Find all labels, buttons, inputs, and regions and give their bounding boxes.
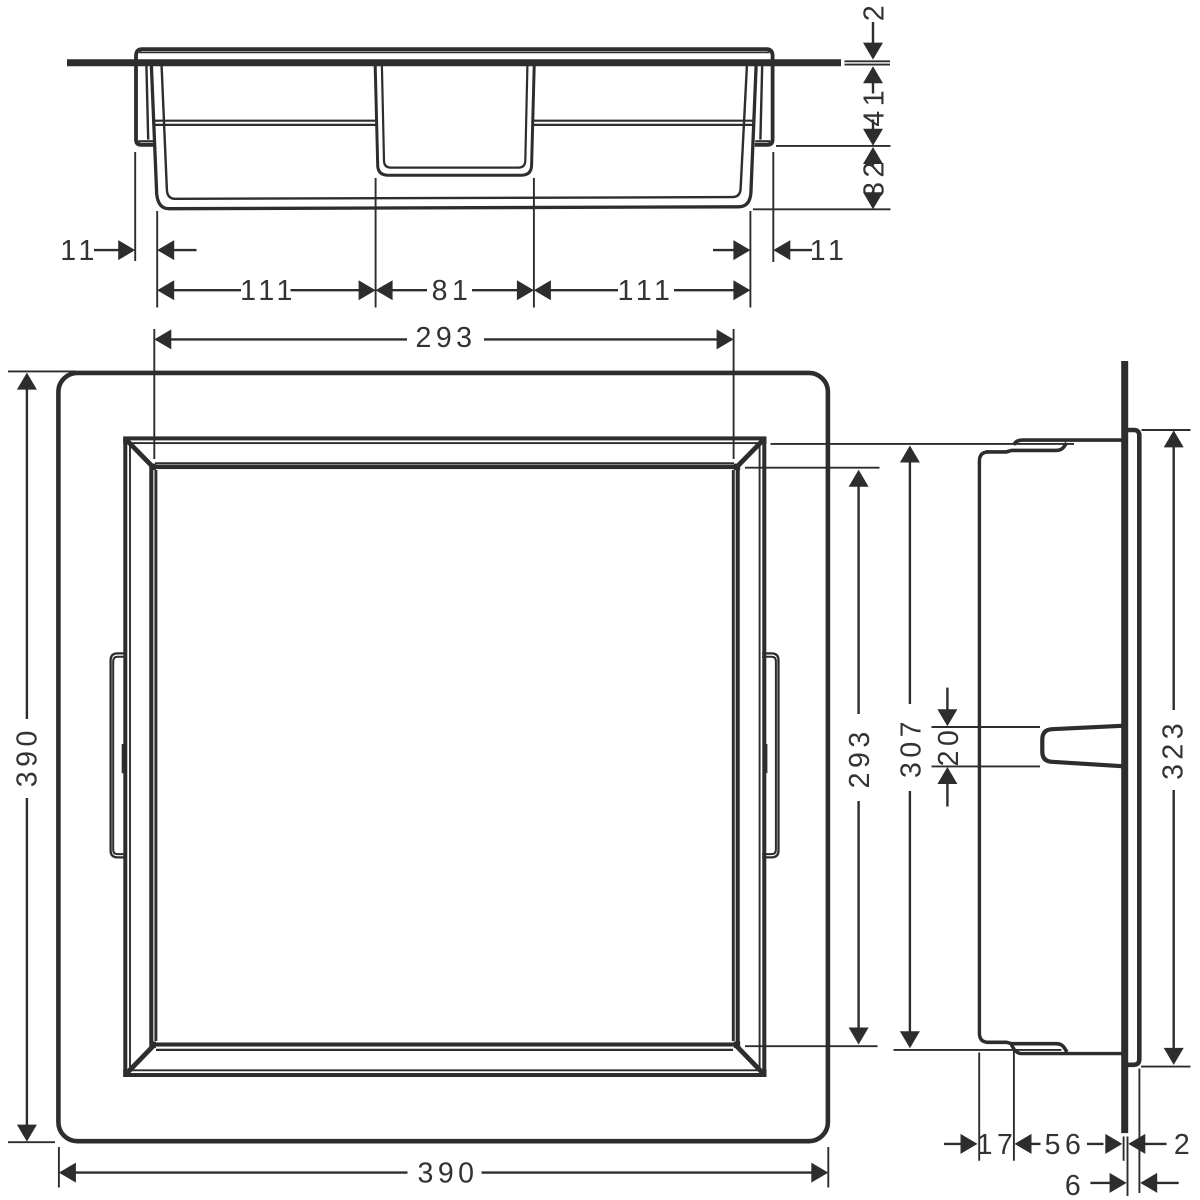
svg-text:6: 6 (1065, 1170, 1085, 1200)
svg-text:111: 111 (240, 275, 297, 307)
svg-text:293: 293 (844, 727, 876, 788)
svg-text:81: 81 (432, 275, 473, 307)
svg-text:17: 17 (977, 1129, 1018, 1161)
svg-text:323: 323 (1158, 719, 1190, 780)
svg-text:20: 20 (933, 726, 965, 767)
svg-text:11: 11 (60, 235, 99, 267)
svg-text:32: 32 (859, 157, 891, 198)
svg-text:56: 56 (1045, 1129, 1086, 1161)
svg-text:111: 111 (618, 275, 675, 307)
svg-text:41: 41 (859, 86, 891, 127)
svg-text:390: 390 (417, 1158, 478, 1190)
svg-text:2: 2 (1174, 1129, 1194, 1161)
svg-text:307: 307 (895, 717, 927, 778)
svg-text:2: 2 (859, 1, 891, 21)
svg-text:11: 11 (810, 235, 849, 267)
svg-text:293: 293 (415, 322, 476, 354)
svg-text:390: 390 (11, 726, 43, 787)
